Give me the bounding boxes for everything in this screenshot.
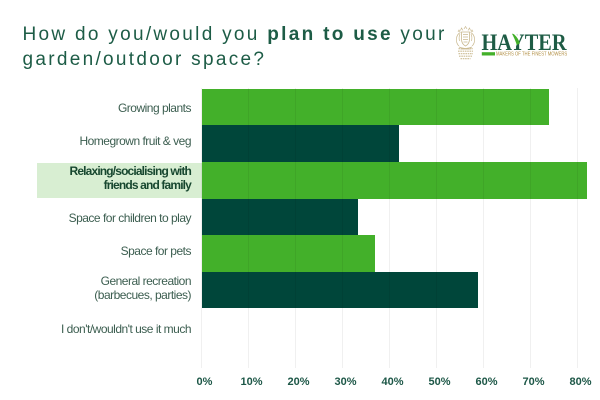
svg-text:MAKERS OF THE FINEST MOWERS: MAKERS OF THE FINEST MOWERS: [496, 52, 568, 58]
